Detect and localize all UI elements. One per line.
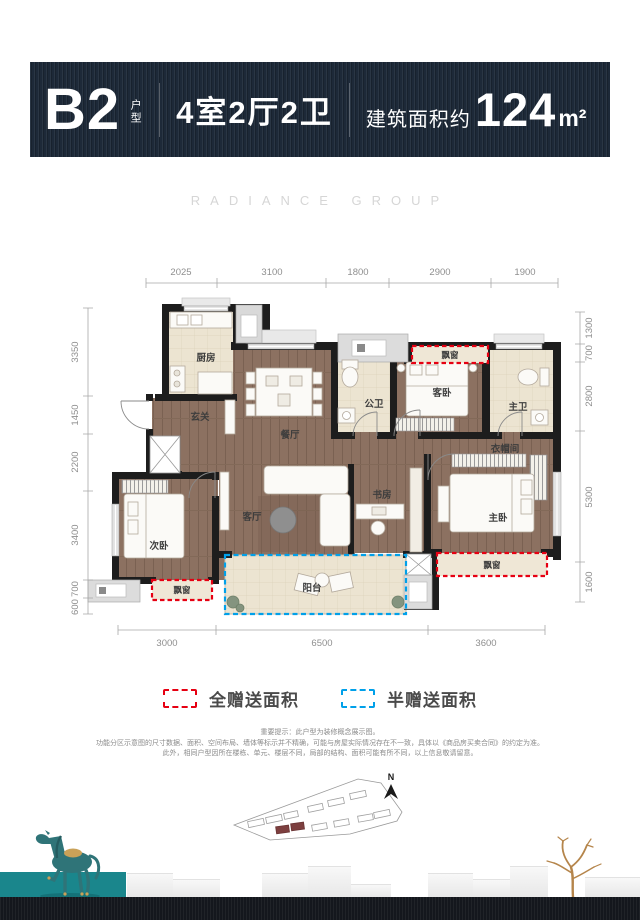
dim-right-1: 1300	[584, 317, 595, 338]
deco-block	[308, 866, 351, 898]
room-label-closet: 衣帽间	[491, 443, 520, 455]
plan-code: B2	[44, 81, 120, 139]
dim-top-4: 2900	[429, 267, 450, 278]
deco-block	[428, 873, 473, 898]
disclaimer-line-3: 此外，相同户型因所在楼栋、单元、楼层不同，局部的结构、面积可能有所不同，以上信息…	[40, 748, 600, 759]
deco-block	[127, 873, 173, 898]
footer-band	[0, 897, 640, 920]
legend-item-half-gift: 半赠送面积	[341, 686, 477, 711]
room-label-guest-bedroom: 客卧	[431, 387, 452, 399]
dim-top-1: 2025	[170, 267, 191, 278]
room-label-master-bath: 主卫	[508, 401, 528, 413]
bay-window-label-2: 飘窗	[483, 560, 501, 570]
room-label-second-bedroom: 次卧	[149, 540, 169, 552]
header-banner: B2 户型 4室2厅2卫 建筑面积约 124 m²	[30, 62, 610, 157]
north-label: N	[388, 772, 395, 782]
dim-top-3: 1800	[347, 267, 368, 278]
brand-watermark: RADIANCE GROUP	[0, 193, 640, 208]
dim-top-2: 3100	[261, 267, 282, 278]
dim-left-5: 700	[70, 581, 81, 597]
area-prefix: 建筑面积约	[366, 103, 471, 132]
branch-icon	[533, 833, 615, 897]
half-gift-swatch	[341, 689, 375, 708]
dim-right-3: 2800	[584, 385, 595, 406]
header-divider	[159, 83, 160, 137]
dim-bottom-3: 3600	[475, 638, 496, 649]
horse-statue-icon	[26, 828, 112, 900]
dim-bottom-1: 3000	[156, 638, 177, 649]
room-label-foyer: 玄关	[190, 411, 210, 423]
legend: 全赠送面积 半赠送面积	[0, 686, 640, 711]
floorplan: 厨房 玄关 餐厅 公卫 客卧 主卫 衣帽间 书房 主卧 次卧 客厅 阳台 飘窗 …	[0, 258, 640, 668]
dim-left-4: 3400	[70, 524, 81, 545]
disclaimer-line-1: 重要提示：此户型为装修概念展示图。	[40, 727, 600, 738]
deco-block	[351, 884, 391, 898]
half-gift-label: 半赠送面积	[387, 686, 477, 711]
deco-block	[473, 879, 510, 898]
disclaimer-line-2: 功能分区示意图的尺寸数据、面积、空间布局、墙体等标示并不精确，可能与房屋实际情况…	[40, 738, 600, 749]
room-label-public-bath: 公卫	[364, 399, 384, 410]
dim-left-1: 3350	[70, 341, 81, 362]
header-divider-2	[349, 83, 350, 137]
dim-right-4: 5300	[584, 486, 595, 507]
room-label-kitchen: 厨房	[196, 352, 215, 364]
dim-left-3: 2200	[70, 451, 81, 472]
built-area: 建筑面积约 124 m²	[366, 82, 587, 137]
dim-right-5: 1600	[584, 571, 595, 592]
legend-item-full-gift: 全赠送面积	[163, 686, 299, 711]
room-label-balcony: 阳台	[302, 582, 322, 594]
dim-bottom-2: 6500	[311, 638, 332, 649]
plan-code-suffix: 户型	[127, 99, 143, 125]
room-label-master-bedroom: 主卧	[488, 512, 508, 524]
full-gift-label: 全赠送面积	[209, 686, 299, 711]
room-label-living: 客厅	[241, 511, 262, 523]
room-label-study: 书房	[372, 489, 391, 501]
deco-block	[173, 879, 220, 898]
dim-top-5: 1900	[514, 267, 535, 278]
site-plan: N	[228, 768, 418, 860]
flyer-page: B2 户型 4室2厅2卫 建筑面积约 124 m² RADIANCE GROUP	[0, 0, 640, 920]
deco-block	[262, 873, 308, 898]
bay-window-label-3: 飘窗	[173, 585, 191, 595]
area-unit: m²	[558, 105, 586, 132]
dim-left-6: 600	[70, 599, 81, 615]
room-count: 4室2厅2卫	[176, 87, 333, 132]
bay-window-label-1: 飘窗	[441, 350, 459, 360]
dim-right-2: 700	[584, 345, 595, 361]
full-gift-swatch	[163, 689, 197, 708]
area-value: 124	[475, 82, 556, 137]
room-label-dining: 餐厅	[279, 429, 300, 441]
disclaimer: 重要提示：此户型为装修概念展示图。 功能分区示意图的尺寸数据、面积、空间布局、墙…	[40, 727, 600, 759]
dim-left-2: 1450	[70, 404, 81, 425]
